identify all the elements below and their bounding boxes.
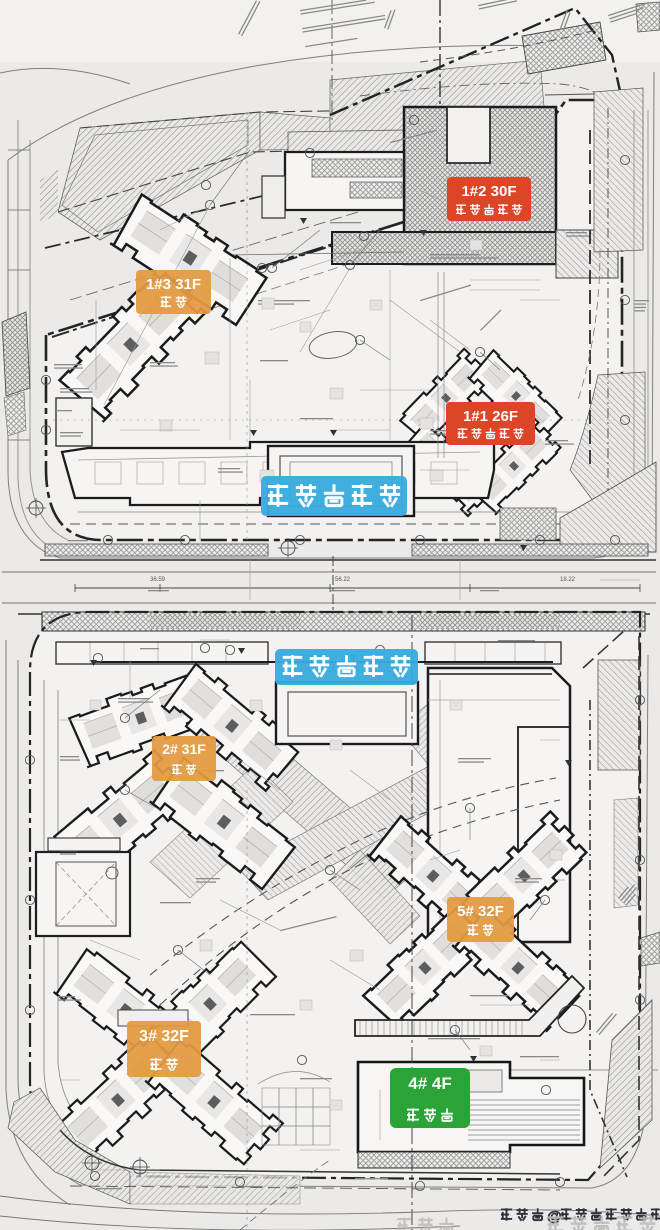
svg-text:56.22: 56.22 bbox=[335, 577, 351, 583]
svg-text:1#1 26F: 1#1 26F bbox=[463, 408, 518, 425]
svg-text:2# 31F: 2# 31F bbox=[162, 741, 206, 757]
svg-text:1#2 30F: 1#2 30F bbox=[461, 183, 516, 200]
svg-text:36.59: 36.59 bbox=[150, 577, 166, 583]
svg-text:5# 32F: 5# 32F bbox=[457, 903, 504, 920]
svg-text:1#3 31F: 1#3 31F bbox=[146, 276, 201, 293]
svg-text:3# 32F: 3# 32F bbox=[139, 1028, 189, 1045]
svg-text:4# 4F: 4# 4F bbox=[408, 1074, 451, 1093]
svg-text:18.22: 18.22 bbox=[560, 577, 576, 583]
